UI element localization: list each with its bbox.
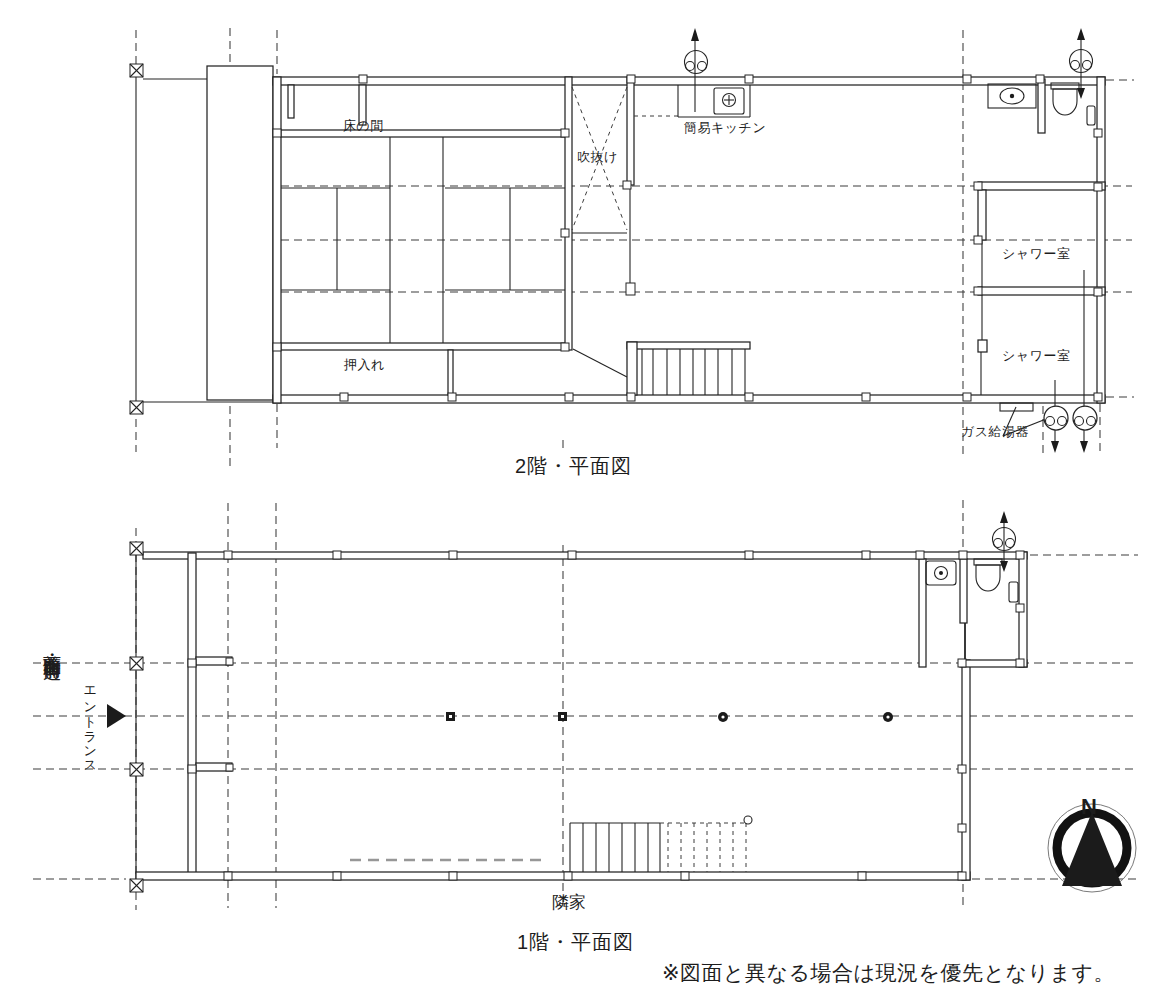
label-closet: 押入れ	[344, 358, 385, 372]
vent-icon-1f-toilet	[993, 511, 1016, 572]
tatami-room	[281, 130, 565, 343]
label-kitchen: 簡易キッチン	[684, 121, 766, 135]
label-entrance: エントランス	[83, 678, 97, 767]
grid-lines-floor2	[136, 28, 1134, 470]
toilet-2f	[988, 79, 1095, 133]
floor1-caption: 1階・平面図	[517, 932, 634, 953]
label-neighbor: 隣家	[552, 894, 586, 912]
label-gas-heater: ガス給湯器	[961, 425, 1029, 439]
label-shower-upper: シャワー室	[1002, 247, 1070, 261]
floor2-caption: 2階・平面図	[515, 456, 632, 477]
label-atrium: 吹抜け	[577, 150, 618, 164]
label-front-road: 前面道路・御前通	[42, 641, 61, 649]
floor-plan-document: 床の間 吹抜け 簡易キッチン シャワー室 シャワー室 押入れ ガス給湯器 2階・…	[0, 0, 1168, 1002]
columns-1f	[446, 712, 893, 722]
stairs-1f	[570, 816, 752, 872]
entrance-arrow	[107, 704, 126, 728]
kitchen-vent-icon	[685, 28, 708, 112]
shower-rooms	[978, 182, 1105, 395]
stairs-2f	[573, 342, 750, 395]
floor2-left-annex	[136, 66, 273, 402]
compass-north-label: N	[1081, 795, 1097, 818]
label-tokonoma: 床の間	[343, 119, 384, 133]
washbasin-1f	[919, 559, 956, 667]
label-shower-lower: シャワー室	[1002, 349, 1070, 363]
vent-icon-2f-toilet	[1070, 28, 1093, 99]
kitchen-unit	[634, 85, 750, 117]
atrium-void	[565, 77, 635, 350]
closet-2f	[281, 343, 565, 395]
disclaimer-note: ※図面と異なる場合は現況を優先となります。	[662, 962, 1115, 984]
grid-lines-floor1	[33, 500, 1138, 910]
